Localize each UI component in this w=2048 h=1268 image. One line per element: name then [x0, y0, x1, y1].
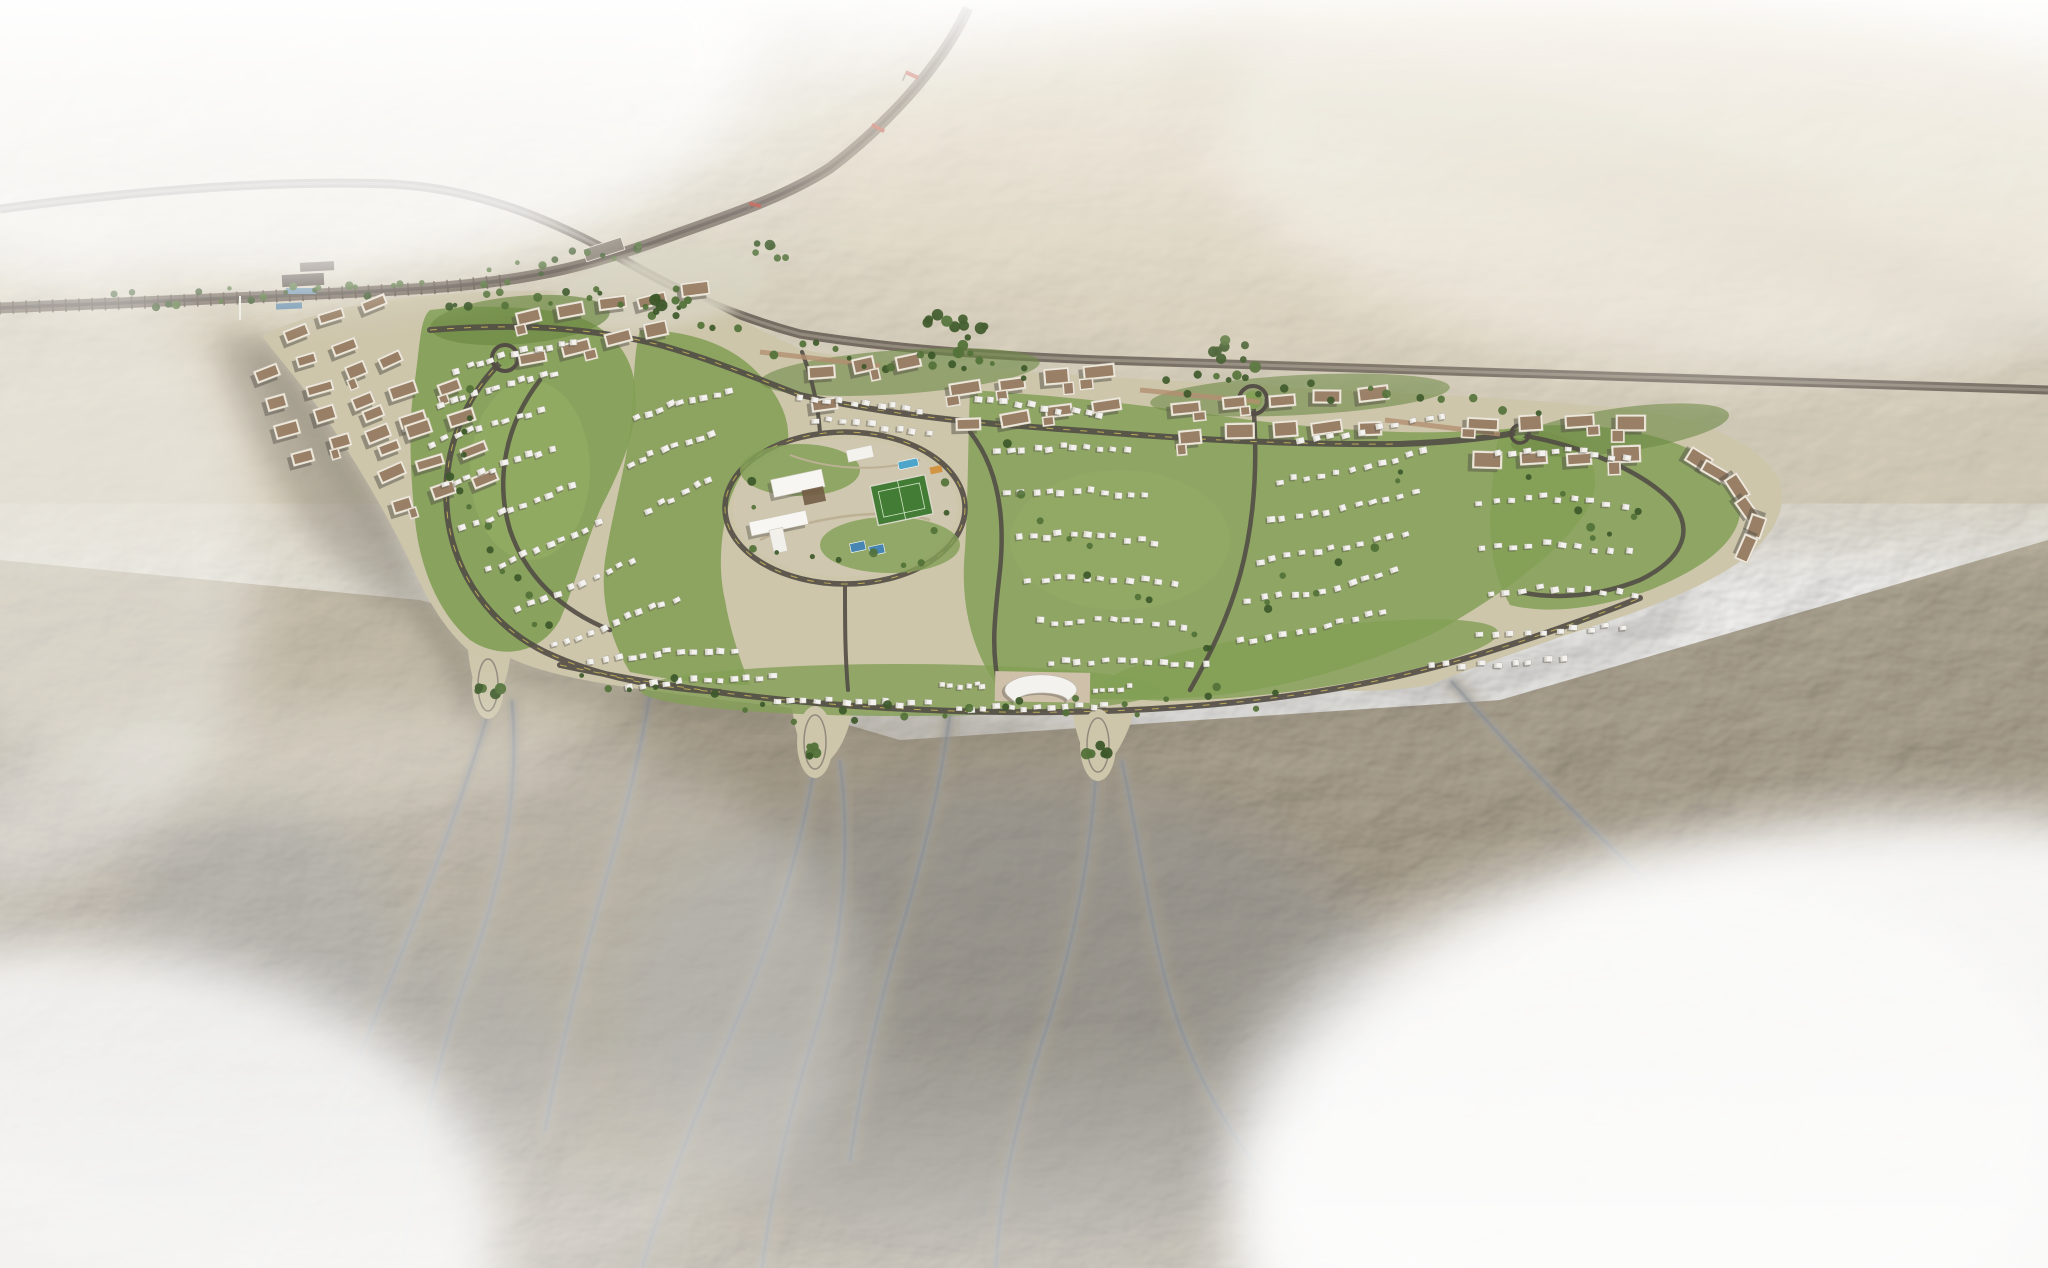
masterplan-aerial-view [0, 0, 2048, 1268]
aerial-render [0, 0, 2048, 1268]
atmospheric-veil [0, 0, 2048, 1268]
atmosphere-haze [0, 0, 2048, 1268]
